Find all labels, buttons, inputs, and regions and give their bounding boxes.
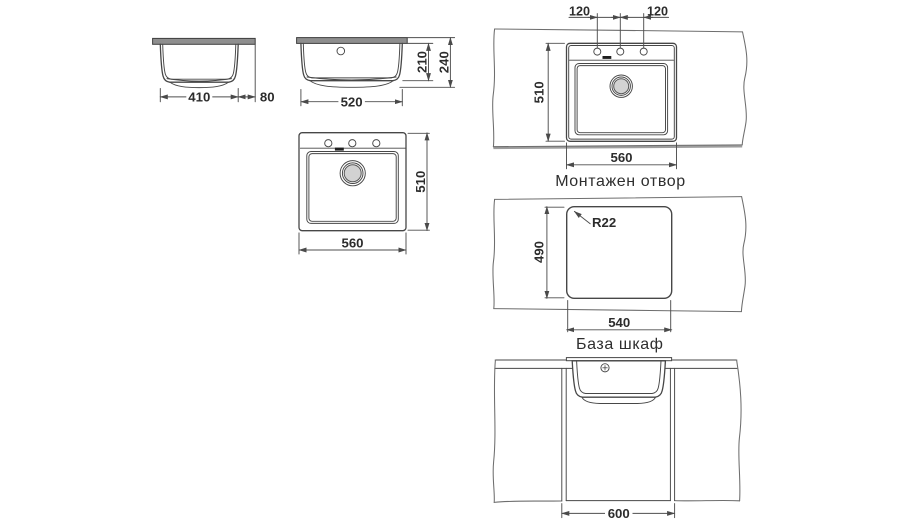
top-view: 510 560 (299, 133, 429, 254)
dim-label-510: 510 (413, 171, 428, 193)
cabinet-front-view: 600 (493, 358, 741, 521)
dim-label-210: 210 (414, 51, 429, 73)
cutout-outline (567, 207, 672, 299)
cutout-view: R22 490 540 База шкаф (493, 197, 746, 353)
overflow-slot (335, 148, 344, 151)
dim-490: 490 (532, 207, 565, 299)
bowl-inner-wall (163, 44, 236, 79)
bowl-edge-outer (307, 152, 399, 224)
dim-label-r22: R22 (592, 215, 616, 230)
dim-label-120-left: 120 (569, 4, 590, 18)
dim-520: 520 (301, 90, 402, 110)
torn-edge-left (493, 360, 495, 502)
technical-drawing-page: 410 80 520 210 240 (0, 0, 904, 529)
drain (340, 161, 365, 186)
dim-label-540: 540 (608, 315, 630, 330)
drain-2 (610, 75, 632, 97)
dim-540: 540 (567, 301, 672, 332)
bowl-base-ring (170, 82, 228, 87)
caption-mounting-opening: Монтажен отвор (555, 173, 686, 190)
bowl-inner-wall-2 (303, 43, 400, 78)
dim-label-600: 600 (608, 506, 630, 521)
dim-label-490: 490 (532, 241, 547, 263)
worktop-cross-section (153, 38, 256, 44)
tap-hole-left (325, 140, 332, 147)
dim-label-510-2: 510 (531, 81, 546, 103)
dim-label-560: 560 (341, 236, 363, 251)
bowl-front-base (582, 397, 656, 403)
dim-410: 410 80 (160, 45, 274, 105)
mounted-top-view: 120 120 510 560 Монтажен отвор (493, 4, 747, 189)
dim-label-240: 240 (437, 51, 452, 73)
dim-120-120: 120 120 (569, 4, 669, 47)
dim-label-120-right: 120 (647, 4, 668, 18)
bowl-outer-wall (160, 44, 238, 82)
dim-label-80: 80 (260, 90, 275, 105)
dim-560-top: 560 (299, 233, 406, 254)
dim-510-mounted: 510 (531, 43, 564, 141)
dim-600: 600 (562, 504, 675, 521)
worktop-cross-section-2 (297, 38, 408, 44)
torn-edge-right (737, 360, 741, 501)
overflow-hole (337, 47, 345, 55)
dim-label-410: 410 (188, 90, 210, 105)
tap-hole-right (373, 140, 380, 147)
dim-510-top: 510 (408, 133, 429, 231)
technical-drawing-canvas: 410 80 520 210 240 (0, 0, 904, 529)
bowl-edge-inner (309, 154, 396, 222)
caption-base-cabinet: База шкаф (576, 336, 664, 353)
dim-label-520: 520 (341, 94, 363, 109)
bowl-front-outer (572, 361, 665, 397)
overflow-slot-2 (603, 56, 612, 59)
bowl-outer-wall-2 (301, 43, 402, 80)
tap-hole-center (349, 140, 356, 147)
side-section-view: 410 80 (153, 38, 275, 104)
left-panel-bottom (494, 501, 562, 502)
dim-label-560-2: 560 (610, 150, 632, 165)
front-section-view: 520 210 240 (297, 38, 455, 110)
dim-210-240: 210 240 (400, 38, 455, 88)
bowl-base-ring-2 (310, 81, 393, 88)
